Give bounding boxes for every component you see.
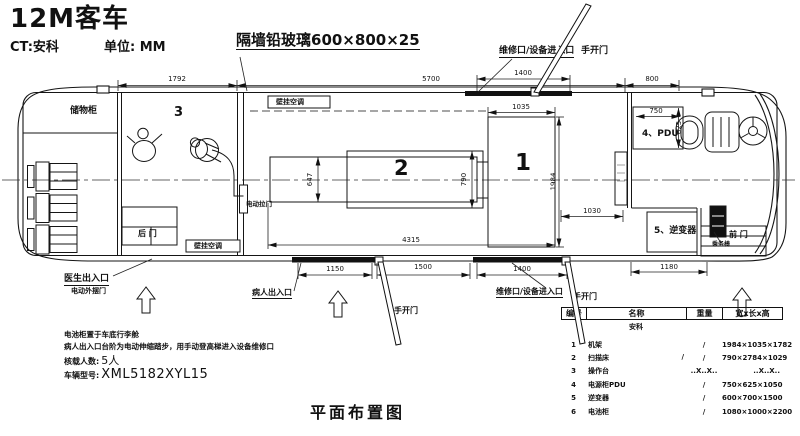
pdu-label: 4、PDU: [642, 130, 679, 139]
dim-5700: 5700: [422, 76, 440, 83]
maintenance-top-label: 维修口/设备进入口: [499, 47, 574, 58]
lead-glass-callout: 隔墙铅玻璃600×800×25: [236, 33, 420, 50]
note-model: 车辆型号: XML5182XYL15: [64, 368, 208, 381]
page-title: 12M客车: [10, 6, 129, 32]
model-value: XML5182XYL15: [101, 368, 208, 381]
rear-door-steps: [122, 207, 177, 245]
note-steps: 病人出入口台阶为电动伸缩踏步，用手动登高梯进入设备维修口: [64, 343, 274, 351]
cell-size: 790×2784×1029: [722, 354, 781, 362]
dim-1400-bottom: 1400: [513, 266, 531, 273]
cell-no: 6: [561, 408, 586, 416]
dim-1150: 1150: [326, 266, 344, 273]
patient-entrance-label: 病人出入口: [252, 289, 292, 299]
table-row: 4 电源柜PDU / 750×625×1050: [561, 378, 783, 391]
cell-size: 600×700×1500: [722, 394, 781, 402]
cell-weight: ..X..X..: [686, 367, 722, 375]
equipment-table: 编号 名称 重量 宽x长x高 安科 1 机架 / 1984×1035×1782 …: [561, 307, 783, 418]
dim-1984: 1984: [550, 173, 557, 191]
dim-800: 800: [645, 76, 658, 83]
room3-label: 3: [174, 106, 183, 119]
room2-label: 2: [394, 158, 409, 179]
cell-name: 操作台: [588, 366, 609, 376]
attendant-jump-seat: [710, 206, 726, 237]
cell-size: 750×625×1050: [722, 381, 781, 389]
cell-size: 1984×1035×1782: [722, 341, 781, 349]
small-cabinet: [615, 152, 627, 205]
dim-790: 790: [461, 173, 468, 186]
col-header-weight: 重量: [687, 308, 723, 319]
cell-size: ..X..X..: [722, 367, 781, 375]
cell-weight: /: [686, 354, 722, 362]
manual-door-top-label: 手开门: [581, 47, 608, 56]
rear-door-label: 后 门: [138, 230, 157, 238]
up-arrow-icon: [137, 287, 155, 313]
cell-name: 电池柜: [588, 407, 609, 417]
cell-no: 3: [561, 367, 586, 375]
front-door-label: 前 门: [729, 231, 748, 239]
cell-no: 5: [561, 394, 586, 402]
ct-gantry: [488, 117, 555, 247]
room1-label: 1: [515, 152, 531, 175]
cell-name: 电源柜PDU: [588, 380, 626, 390]
cell-no: 1: [561, 341, 586, 349]
table-brand-row: 安科: [561, 320, 783, 333]
cell-weight: /: [686, 408, 722, 416]
steering-wheel-icon: [739, 117, 767, 145]
inverter-label: 5、逆变器: [654, 227, 696, 236]
unit-label: 单位: MM: [104, 41, 166, 54]
table-row: 3 操作台 ..X..X.. ..X..X..: [561, 365, 783, 378]
table-row: 6 电池柜 / 1080×1000×2200: [561, 405, 783, 418]
attendant-seat-label: 乘务椅: [712, 242, 730, 248]
cell-no: 4: [561, 381, 586, 389]
cell-weight: /: [686, 381, 722, 389]
person-seated-icon: [190, 138, 221, 162]
rear-seat: [28, 225, 78, 254]
dim-1035: 1035: [512, 104, 530, 111]
maintenance-bottom-label: 维修口/设备进入口: [496, 288, 563, 298]
roof-detail-rear: [97, 86, 109, 93]
drawing-caption: 平面布置图: [310, 405, 405, 421]
driver-seat: [705, 112, 739, 152]
table-header: 编号 名称 重量 宽x长x高: [561, 307, 783, 320]
dim-647: 647: [307, 173, 314, 186]
cell-mid: /: [681, 353, 684, 363]
manual-door-mid-label: 手开门: [394, 307, 418, 315]
dim-1400-top: 1400: [514, 70, 532, 77]
table-row: 1 机架 / 1984×1035×1782: [561, 338, 783, 351]
ct-brand-label: CT:安科: [10, 41, 59, 54]
doctor-exit-label: 医生出入口: [64, 275, 109, 286]
table-row: 2 扫描床/ / 790×2784×1029: [561, 351, 783, 364]
partition-door-label: 电动拉门: [246, 201, 272, 208]
note-battery: 电池柜置于车底行李舱: [64, 331, 139, 339]
dim-1792: 1792: [168, 76, 186, 83]
table-row: 5 逆变器 / 600×700×1500: [561, 392, 783, 405]
dim-1180: 1180: [660, 264, 678, 271]
person-standing-icon: [127, 128, 162, 161]
brand-cell: 安科: [586, 322, 686, 332]
cell-name: 机架: [588, 340, 602, 350]
dim-625: 625: [676, 121, 683, 134]
dim-1030: 1030: [583, 208, 601, 215]
cell-size: 1080×1000×2200: [722, 408, 781, 416]
capacity-value: 5人: [101, 355, 119, 366]
wall-ac-top-label: 壁挂空调: [276, 99, 304, 106]
rear-seat: [28, 194, 78, 223]
manual-door-right-label: 手开门: [573, 293, 597, 301]
wall-ac-bottom-label: 壁挂空调: [194, 243, 222, 250]
cell-no: 2: [561, 354, 586, 362]
floor-plan-page: 12M客车 CT:安科 单位: MM 隔墙铅玻璃600×800×25 平面布置图…: [0, 0, 800, 436]
electric-swing-door-label: 电动外摆门: [71, 288, 106, 295]
roof-detail-front: [702, 89, 714, 96]
cell-weight: /: [686, 394, 722, 402]
note-capacity: 核载人数: 5人: [64, 355, 119, 366]
dim-4315: 4315: [402, 237, 420, 244]
up-arrow-icon: [329, 291, 347, 317]
model-label: 车辆型号:: [64, 372, 99, 380]
sliding-door-panel: [240, 185, 248, 213]
capacity-label: 核载人数:: [64, 358, 99, 366]
dim-750: 750: [649, 108, 662, 115]
col-header-no: 编号: [562, 308, 587, 319]
col-header-size: 宽x长x高: [723, 308, 782, 319]
cell-weight: /: [686, 341, 722, 349]
windshield-curve: [760, 94, 779, 254]
door-openings: [292, 88, 572, 265]
operator-room: [127, 128, 244, 196]
cell-name: 扫描床: [588, 353, 609, 363]
storage-label: 储物柜: [70, 107, 97, 116]
dim-1500: 1500: [414, 264, 432, 271]
rear-seat: [28, 162, 78, 191]
col-header-name: 名称: [587, 308, 687, 319]
cell-name: 逆变器: [588, 393, 609, 403]
scan-bed-base: [270, 157, 477, 202]
